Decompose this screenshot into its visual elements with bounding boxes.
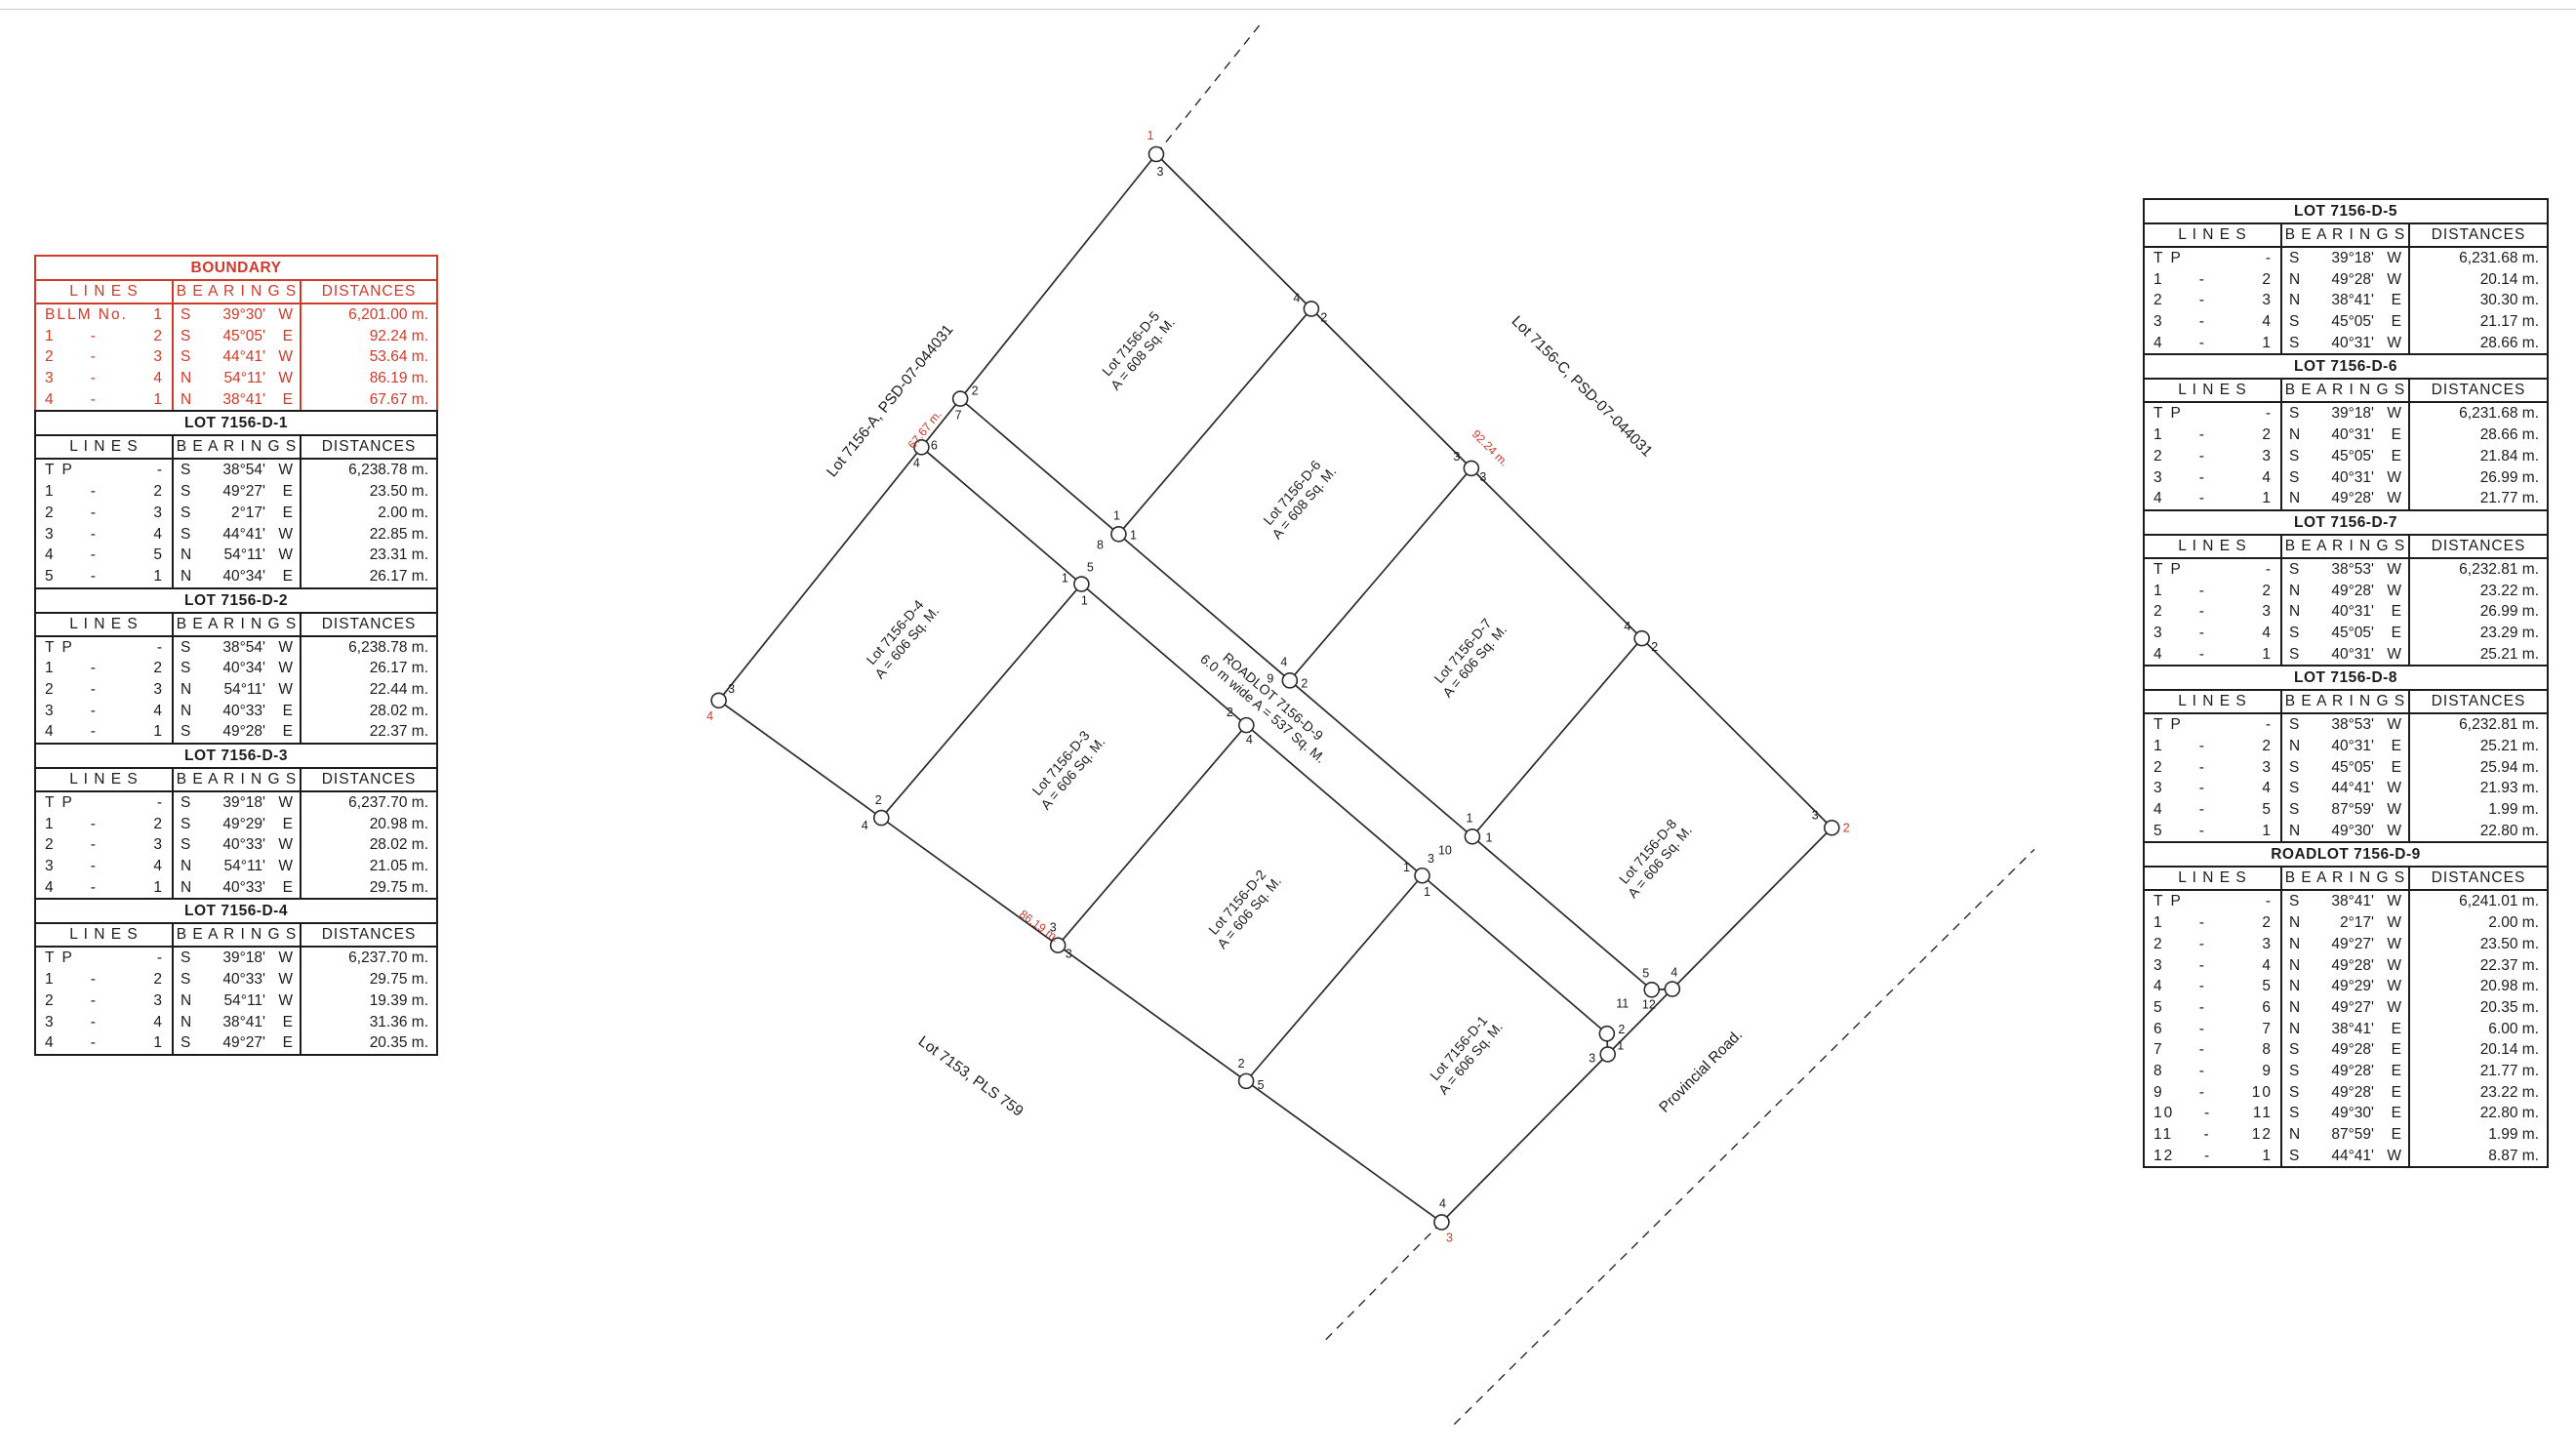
bearing-angle: 39°18' [2307,248,2374,269]
bearing-ns: N [2282,934,2307,955]
table-row: 8-9S49°28'E21.77 m. [2145,1061,2547,1082]
lines-header: L I N E S [2145,868,2280,889]
bearing-cell: N87°59'E [2280,1124,2408,1146]
line-from: 12 [2145,1146,2174,1167]
line-dash: - [2164,799,2239,821]
bearing-angle: 49°28' [2307,488,2374,509]
lines-cell: 2-3 [2145,601,2280,623]
distance-cell: 22.80 m. [2408,1103,2547,1124]
lines-cell: 4-5 [2145,799,2280,821]
lines-cell: 12-1 [2145,1146,2280,1167]
table-row: 4-1S40°31'W25.21 m. [2145,644,2547,666]
bearing-angle: 49°28' [2307,269,2374,291]
table-row: T P-S39°18'W6,231.68 m. [2145,403,2547,424]
bearing-ns: S [2282,467,2307,489]
corner-monument-marker [1304,302,1318,316]
distances-header: DISTANCES [2408,224,2547,246]
distance-cell: 26.99 m. [2408,467,2547,489]
lot-boundary-line [1246,875,1422,1081]
table-row: 1-2N2°17'W2.00 m. [2145,912,2547,934]
lot-boundary-line [1081,585,1246,726]
bearing-angle: 38°41' [2307,290,2374,311]
bearing-angle: 45°05' [2307,446,2374,467]
line-from: 3 [2145,467,2164,489]
bearing-ew: E [2374,424,2408,446]
table-row: 4-1N49°28'W21.77 m. [2145,488,2547,509]
corner-monument-marker [1600,1047,1615,1062]
bearing-cell: S45°05'E [2280,757,2408,779]
lines-header: L I N E S [2145,224,2280,246]
bearing-cell: N49°27'W [2280,934,2408,955]
line-dash: - [2164,757,2239,779]
line-dash: - [2174,1146,2239,1167]
lines-cell: 5-1 [2145,821,2280,842]
corner-monument-marker [1465,829,1479,844]
corner-point-number: 3 [1446,1231,1453,1244]
bearing-cell: N49°28'W [2280,581,2408,602]
adjoining-lot-label: Lot 7156-C, PSD-07-044031 [1509,313,1656,461]
lines-cell: 4-1 [2145,333,2280,354]
bearing-cell: S39°18'W [2280,248,2408,269]
lot-boundary-line [1246,725,1422,875]
label-line: Lot 7156-A, PSD-07-044031 [824,322,956,481]
bearing-ns: N [2282,1019,2307,1040]
table-row: 1-2N49°28'W23.22 m. [2145,581,2547,602]
line-from: T P [2145,714,2183,736]
table-row: 7-8S49°28'E20.14 m. [2145,1039,2547,1061]
bearing-ew: W [2374,333,2408,354]
bearing-ew: W [2374,976,2408,997]
table-row: 10-11S49°30'E22.80 m. [2145,1103,2547,1124]
corner-point-number: 3 [1453,450,1460,464]
corner-point-number: 1 [1466,811,1472,825]
bearing-cell: S49°28'E [2280,1082,2408,1104]
bearing-ew: E [2374,757,2408,779]
distances-header: DISTANCES [2408,536,2547,557]
corner-monument-marker [1239,1073,1254,1088]
corner-point-number: 4 [1624,620,1630,633]
table-title: LOT 7156-D-5 [2145,200,2547,224]
line-from: 2 [2145,601,2164,623]
lines-cell: 10-11 [2145,1103,2280,1124]
bearing-ns: N [2282,424,2307,446]
line-dash: - [2164,934,2239,955]
corner-point-number: 2 [1320,310,1327,324]
table-row: T P-S39°18'W6,231.68 m. [2145,248,2547,269]
line-from: 4 [2145,644,2164,666]
bearing-cell: S38°41'W [2280,891,2408,912]
table-row: 3-4S44°41'W21.93 m. [2145,778,2547,799]
lot-name-label: Lot 7156-D-2A = 606 Sq. M. [1202,863,1284,951]
corner-point-number: 2 [875,793,882,807]
survey-plan-sheet: BOUNDARYL I N E SB E A R I N G SDISTANCE… [0,0,2576,1454]
line-from: 2 [2145,290,2164,311]
distance-cell: 30.30 m. [2408,290,2547,311]
table-header-row: L I N E SB E A R I N G SDISTANCES [2145,536,2547,559]
line-dash: - [2164,997,2239,1019]
table-row: 1-2N40°31'E28.66 m. [2145,424,2547,446]
corner-point-number: 2 [1618,1023,1625,1036]
bearing-angle: 40°31' [2307,644,2374,666]
line-dash: - [2164,581,2239,602]
lot-name-label: Lot 7156-D-7A = 606 Sq. M. [1428,612,1509,701]
lines-cell: 2-3 [2145,290,2280,311]
corner-point-number: 2 [1227,706,1233,719]
table-row: 4-5N49°29'W20.98 m. [2145,976,2547,997]
lines-cell: 5-6 [2145,997,2280,1019]
lines-cell: 8-9 [2145,1061,2280,1082]
table-row: 5-1N49°30'W22.80 m. [2145,821,2547,842]
table-row: 1-2N40°31'E25.21 m. [2145,736,2547,757]
bearing-angle: 49°27' [2307,997,2374,1019]
distances-header: DISTANCES [2408,691,2547,712]
line-dash: - [2164,424,2239,446]
bearing-ew: W [2374,644,2408,666]
corner-point-number: 2 [1651,640,1658,654]
bearing-ns: N [2282,1124,2307,1146]
lot-boundary-line [960,399,1118,535]
table-header-row: L I N E SB E A R I N G SDISTANCES [2145,224,2547,248]
lines-cell: 7-8 [2145,1039,2280,1061]
bearing-ns: N [2282,955,2307,977]
bearings-header: B E A R I N G S [2280,380,2408,401]
line-from: 2 [2145,934,2164,955]
corner-point-number: 1 [1113,508,1120,522]
label-line: Lot 7153, PLS 759 [915,1033,1026,1120]
bearing-angle: 40°31' [2307,601,2374,623]
bearing-angle: 38°53' [2307,559,2374,581]
bearing-ns: S [2282,891,2307,912]
table-row: 9-10S49°28'E23.22 m. [2145,1082,2547,1104]
distance-cell: 20.14 m. [2408,1039,2547,1061]
bearing-ew: W [2374,778,2408,799]
bearing-angle: 38°41' [2307,1019,2374,1040]
line-to: 4 [2239,311,2280,333]
lines-cell: 1-2 [2145,424,2280,446]
bearing-ns: S [2282,1061,2307,1082]
lines-cell: 2-3 [2145,934,2280,955]
lines-cell: 1-2 [2145,912,2280,934]
lot-name-label: Lot 7156-D-6A = 608 Sq. M. [1257,453,1339,542]
bearing-ns: S [2282,446,2307,467]
line-from: 4 [2145,488,2164,509]
line-from: T P [2145,891,2183,912]
line-to: 11 [2239,1103,2280,1124]
bearing-ew: W [2374,581,2408,602]
corner-monument-marker [953,391,968,406]
bearing-cell: N40°31'E [2280,736,2408,757]
bearing-angle: 40°31' [2307,333,2374,354]
bearing-cell: N49°29'W [2280,976,2408,997]
bearings-header: B E A R I N G S [2280,536,2408,557]
corner-monument-marker [1634,631,1649,646]
lines-cell: 1-2 [2145,269,2280,291]
bearing-ew: E [2374,1124,2408,1146]
line-from: 4 [2145,333,2164,354]
distance-cell: 6,231.68 m. [2408,248,2547,269]
bearing-cell: S44°41'W [2280,1146,2408,1167]
corner-monument-marker [1434,1215,1449,1230]
distance-cell: 26.99 m. [2408,601,2547,623]
label-line: Provincial Road. [1656,1027,1746,1116]
table-row: 2-3N38°41'E30.30 m. [2145,290,2547,311]
line-from: T P [2145,403,2183,424]
line-from: 1 [2145,269,2164,291]
corner-point-number: 1 [1617,1038,1624,1052]
bearing-ew: E [2374,1082,2408,1104]
table-title: LOT 7156-D-8 [2145,666,2547,691]
bearing-angle: 49°29' [2307,976,2374,997]
line-dash: - [2164,1082,2239,1104]
line-to: 1 [2239,333,2280,354]
adjoining-lot-label: Lot 7153, PLS 759 [915,1033,1026,1120]
distance-cell: 21.77 m. [2408,488,2547,509]
bearing-angle: 40°31' [2307,736,2374,757]
survey-table: LOT 7156-D-6L I N E SB E A R I N G SDIST… [2143,353,2549,510]
bearing-ew: W [2374,467,2408,489]
line-to: 3 [2239,290,2280,311]
line-to: 12 [2239,1124,2280,1146]
line-to: - [2239,248,2280,269]
line-to: 1 [2239,488,2280,509]
table-header-row: L I N E SB E A R I N G SDISTANCES [2145,868,2547,891]
corner-monument-marker [874,811,889,826]
line-dash: - [2164,269,2239,291]
bearing-ew: W [2374,714,2408,736]
bearing-cell: S45°05'E [2280,311,2408,333]
corner-point-number: 3 [1479,470,1486,484]
dashed-reference-line [1454,849,2034,1424]
lines-cell: 2-3 [2145,446,2280,467]
line-dash: - [2164,311,2239,333]
corner-monument-marker [1074,577,1089,591]
corner-point-number: 4 [706,709,713,723]
bearing-angle: 49°27' [2307,934,2374,955]
corner-monument-marker [1599,1027,1614,1041]
line-dash: - [2164,912,2239,934]
distance-cell: 1.99 m. [2408,799,2547,821]
bearing-cell: S40°31'W [2280,644,2408,666]
line-from: 1 [2145,736,2164,757]
corner-point-number: 2 [1843,821,1850,834]
lines-cell: T P- [2145,559,2280,581]
lines-cell: 4-1 [2145,488,2280,509]
bearing-angle: 44°41' [2307,1146,2374,1167]
line-from: 1 [2145,581,2164,602]
line-to: 2 [2239,581,2280,602]
bearing-ew: E [2374,736,2408,757]
distance-cell: 22.37 m. [2408,955,2547,977]
bearing-ns: S [2282,1082,2307,1104]
lines-header: L I N E S [2145,380,2280,401]
bearing-cell: N49°30'W [2280,821,2408,842]
table-row: 1-2N49°28'W20.14 m. [2145,269,2547,291]
line-from: 1 [2145,912,2164,934]
line-to: 5 [2239,976,2280,997]
bearing-angle: 49°28' [2307,1082,2374,1104]
lines-cell: 4-1 [2145,644,2280,666]
corner-point-number: 6 [931,438,938,452]
bearing-ns: S [2282,311,2307,333]
corner-monument-marker [1282,673,1297,688]
line-from: 1 [2145,424,2164,446]
line-to: 4 [2239,623,2280,644]
bearing-ew: W [2374,488,2408,509]
table-row: T P-S38°53'W6,232.81 m. [2145,559,2547,581]
line-from: 5 [2145,997,2164,1019]
lot-boundary-line [1423,875,1607,1033]
dashed-reference-line [1156,25,1260,155]
bearing-ns: S [2282,799,2307,821]
line-to: 9 [2239,1061,2280,1082]
line-to: 4 [2239,778,2280,799]
line-to: 3 [2239,757,2280,779]
bearing-ew: W [2374,912,2408,934]
bearing-cell: S87°59'W [2280,799,2408,821]
adjoining-lot-label: Lot 7156-A, PSD-07-044031 [824,322,956,481]
corner-point-number: 2 [1238,1057,1245,1070]
distances-header: DISTANCES [2408,380,2547,401]
corner-monument-marker [1665,982,1679,996]
table-row: 2-3S45°05'E25.94 m. [2145,757,2547,779]
corner-point-number: 4 [1670,966,1677,980]
label-line: ROADLOT 7156-D-9 [1220,649,1326,744]
table-header-row: L I N E SB E A R I N G SDISTANCES [2145,691,2547,714]
bearing-ew: W [2374,799,2408,821]
bearing-angle: 49°28' [2307,581,2374,602]
lines-cell: 1-2 [2145,581,2280,602]
bearing-cell: N38°41'E [2280,1019,2408,1040]
bearing-cell: N49°28'W [2280,955,2408,977]
line-from: T P [2145,559,2183,581]
lines-cell: T P- [2145,248,2280,269]
line-from: 2 [2145,446,2164,467]
lines-cell: 3-4 [2145,623,2280,644]
distance-cell: 21.77 m. [2408,1061,2547,1082]
line-to: 1 [2239,644,2280,666]
bearing-ns: S [2282,248,2307,269]
bearing-ns: N [2282,269,2307,291]
bearing-angle: 49°28' [2307,955,2374,977]
table-row: 3-4S45°05'E23.29 m. [2145,623,2547,644]
line-to: 2 [2239,424,2280,446]
bearing-angle: 38°53' [2307,714,2374,736]
bearing-ns: N [2282,290,2307,311]
line-dash: - [2164,644,2239,666]
corner-monument-marker [1111,527,1126,542]
line-from: 2 [2145,757,2164,779]
bearing-angle: 49°30' [2307,821,2374,842]
lines-cell: 3-4 [2145,778,2280,799]
lot-boundary-line [1472,638,1642,836]
table-row: 2-3S45°05'E21.84 m. [2145,446,2547,467]
line-to: 10 [2239,1082,2280,1104]
distance-cell: 28.66 m. [2408,333,2547,354]
survey-table: LOT 7156-D-8L I N E SB E A R I N G SDIST… [2143,665,2549,843]
line-from: 8 [2145,1061,2164,1082]
lot-boundary-line [921,447,1081,584]
line-from: 7 [2145,1039,2164,1061]
lot-boundary-line [1290,468,1471,680]
bearing-angle: 45°05' [2307,623,2374,644]
line-dash [2183,714,2239,736]
bearing-angle: 39°18' [2307,403,2374,424]
corner-point-number: 4 [1280,655,1287,668]
adjoining-lot-label: Provincial Road. [1656,1027,1746,1116]
bearing-ns: S [2282,333,2307,354]
bearing-ew: W [2374,1146,2408,1167]
lines-cell: 3-4 [2145,311,2280,333]
bearing-ns: S [2282,1146,2307,1167]
lines-cell: 3-4 [2145,955,2280,977]
bearing-ns: S [2282,1039,2307,1061]
bearing-ns: N [2282,821,2307,842]
bearing-ew: W [2374,403,2408,424]
right-table-stack: LOT 7156-D-5L I N E SB E A R I N G SDIST… [2143,200,2549,1168]
corner-point-number: 1 [1403,861,1410,874]
distance-cell: 21.93 m. [2408,778,2547,799]
table-title: LOT 7156-D-6 [2145,355,2547,380]
line-to: 1 [2239,821,2280,842]
lines-cell: T P- [2145,403,2280,424]
line-to: 6 [2239,997,2280,1019]
line-from: 11 [2145,1124,2173,1146]
lot-name-label: Lot 7156-D-3A = 606 Sq. M. [1026,724,1107,813]
distance-cell: 20.14 m. [2408,269,2547,291]
line-from: 3 [2145,778,2164,799]
bearing-ns: N [2282,997,2307,1019]
corner-monument-marker [1644,983,1659,997]
line-to: 5 [2239,799,2280,821]
bearing-cell: N40°31'E [2280,601,2408,623]
bearing-cell: N40°31'E [2280,424,2408,446]
corner-monument-marker [711,693,726,707]
distance-cell: 25.21 m. [2408,644,2547,666]
distance-cell: 23.22 m. [2408,581,2547,602]
line-dash: - [2164,976,2239,997]
table-row: 11-12N87°59'E1.99 m. [2145,1124,2547,1146]
line-from: 5 [2145,821,2164,842]
bearing-ew: W [2374,891,2408,912]
distance-cell: 8.87 m. [2408,1146,2547,1167]
corner-point-number: 7 [955,409,962,423]
bearing-ns: S [2282,403,2307,424]
corner-monument-marker [1239,718,1254,733]
corner-point-number: 5 [1258,1078,1265,1092]
bearing-ns: S [2282,644,2307,666]
distance-cell: 1.99 m. [2408,1124,2547,1146]
line-to: 2 [2239,736,2280,757]
distance-cell: 20.35 m. [2408,997,2547,1019]
table-row: 2-3N49°27'W23.50 m. [2145,934,2547,955]
line-to: 3 [2239,934,2280,955]
corner-point-number: 3 [1812,808,1819,822]
bearing-angle: 40°31' [2307,467,2374,489]
line-dash: - [2164,601,2239,623]
corner-point-number: 1 [1081,594,1088,608]
line-dash: - [2164,736,2239,757]
corner-point-number: 1 [1424,885,1430,899]
bearing-ns: S [2282,714,2307,736]
line-from: 3 [2145,623,2164,644]
bearing-ew: E [2374,601,2408,623]
corner-point-number: 10 [1438,843,1452,857]
table-row: 3-4S40°31'W26.99 m. [2145,467,2547,489]
table-row: 5-6N49°27'W20.35 m. [2145,997,2547,1019]
line-to: 8 [2239,1039,2280,1061]
table-row: 4-5S87°59'W1.99 m. [2145,799,2547,821]
bearing-ew: E [2374,446,2408,467]
